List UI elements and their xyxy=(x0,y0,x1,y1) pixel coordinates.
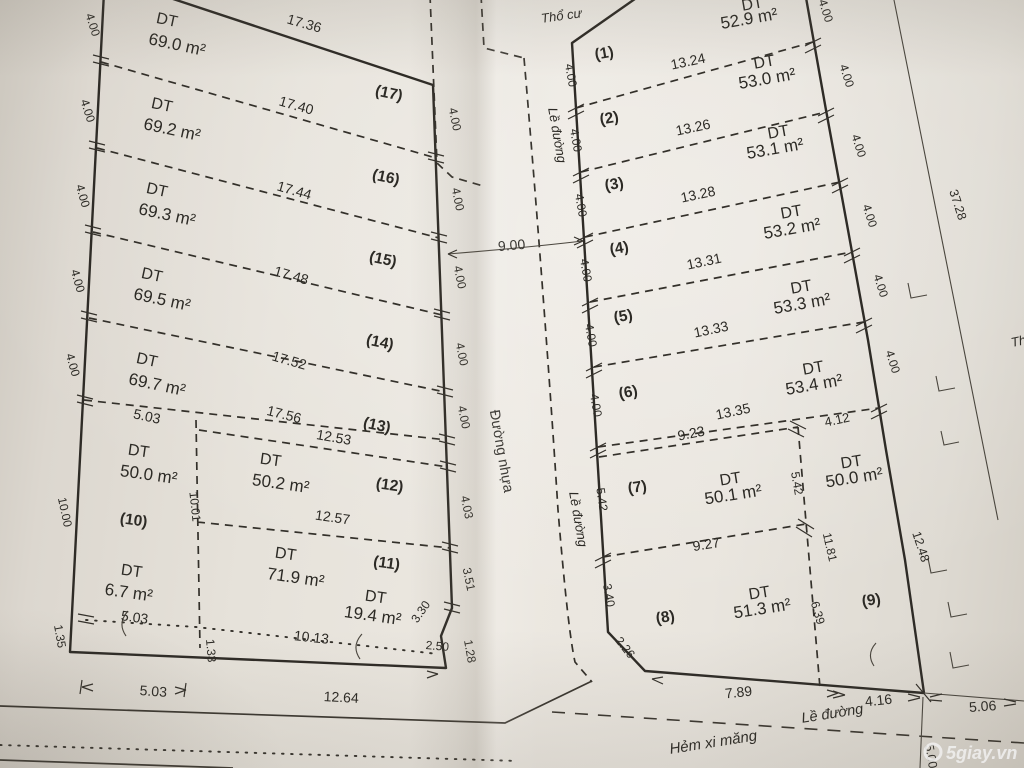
dim-3-51: 3.51 xyxy=(460,566,479,592)
lot-11-dt: DT xyxy=(274,545,298,565)
lot-17-area: 69.0 m² xyxy=(147,29,208,60)
dim-13-33: 13.33 xyxy=(692,318,730,341)
dim-13-28: 13.28 xyxy=(679,183,717,206)
lot-12-id: (12) xyxy=(375,475,405,496)
lot-3-area: 53.1 m² xyxy=(745,134,805,163)
dim-left-4-00-a: 4.00 xyxy=(83,11,104,38)
dim-rbright-4-00-b: 4.00 xyxy=(849,132,870,159)
dim-rbleft-4-00-c: 4.00 xyxy=(572,193,590,219)
dim-10-00: 10.00 xyxy=(55,496,75,529)
dim-bottom-5-03: 5.03 xyxy=(139,682,168,700)
lot-5-area: 53.3 m² xyxy=(772,289,832,318)
dim-10-13: 10.13 xyxy=(293,627,330,647)
dim-bottom-12-64: 12.64 xyxy=(323,688,359,706)
dim-12-57: 12.57 xyxy=(314,507,351,528)
lot-17-dt: DT xyxy=(155,10,180,31)
lot-8-area: 51.3 m² xyxy=(732,595,792,623)
lot-17-id: (17) xyxy=(374,82,405,104)
lot-15-id: (15) xyxy=(368,248,399,270)
dim-right-4-00-a: 4.00 xyxy=(446,106,465,132)
lot-11-area: 71.9 m² xyxy=(266,564,326,591)
dim-left-4-00-b: 4.00 xyxy=(78,97,99,124)
lot-10-dt: DT xyxy=(127,442,151,462)
watermark-text: 5giay.vn xyxy=(946,743,1017,763)
dim-9-23: 9.23 xyxy=(676,423,706,444)
bottom-road-dotted xyxy=(0,745,518,761)
dim-4-12: 4.12 xyxy=(823,410,851,430)
dim-13-24: 13.24 xyxy=(669,50,707,73)
boundary-37-28-line xyxy=(893,0,998,520)
lot-8-id: (8) xyxy=(655,608,676,628)
dim-rbright-4-00-a: 4.00 xyxy=(837,62,858,89)
dim-13-31: 13.31 xyxy=(685,250,723,273)
dim-2-50: 2.50 xyxy=(425,638,450,654)
lot-14-dt: DT xyxy=(140,265,165,286)
dim-37-28: 37.28 xyxy=(946,188,969,222)
dim-rbleft-4-00-b: 4.00 xyxy=(567,128,585,154)
lot-3-id: (3) xyxy=(603,175,625,195)
dim-17-52: 17.52 xyxy=(270,348,308,373)
lot-6-id: (6) xyxy=(617,383,639,403)
lot-13-dt: DT xyxy=(135,350,160,371)
dim-13-35: 13.35 xyxy=(714,400,752,423)
dim-12-53: 12.53 xyxy=(315,426,352,448)
dim-4-03: 4.03 xyxy=(458,494,477,520)
dim-5-42-inner: 5.42 xyxy=(788,471,806,497)
lot-13-id: (13) xyxy=(362,414,393,436)
dim-10-01: 10.01 xyxy=(186,491,203,523)
lot-16-dt: DT xyxy=(150,95,175,116)
dim-right-4-00-c: 4.00 xyxy=(451,264,470,290)
dim-left-4-00-c: 4.00 xyxy=(73,183,93,210)
label-le-duong-top: Lề đường xyxy=(545,106,570,164)
lot-7-id: (7) xyxy=(627,478,648,498)
lot-6-7-area: 6.7 m² xyxy=(104,580,155,606)
dim-5-42-side: 5.42 xyxy=(593,487,610,512)
lot-9-area: 50.0 m² xyxy=(824,464,884,492)
right-block-right-edge xyxy=(805,0,924,693)
dim-1-33: 1.33 xyxy=(203,638,219,663)
dim-17-36: 17.36 xyxy=(285,11,323,36)
lot-7-area: 50.1 m² xyxy=(703,481,763,509)
witness-marks xyxy=(908,283,969,668)
label-hem-xi-mang: Hẻm xi măng xyxy=(668,727,759,758)
dim-rbright-4-00-d: 4.00 xyxy=(871,272,892,299)
dim-rbleft-4-00-f: 4.00 xyxy=(587,393,605,419)
lot-1-id: (1) xyxy=(593,44,615,64)
lot-12-dt: DT xyxy=(259,451,283,471)
dim-rbright-4-00-top: 4.00 xyxy=(816,0,837,24)
dim-rbright-4-00-c: 4.00 xyxy=(860,202,881,229)
dim-left-4-00-e: 4.00 xyxy=(63,352,83,379)
lot-11-id: (11) xyxy=(372,553,401,574)
bottom-road-edge xyxy=(0,681,592,768)
label-tho-cu-right: Th xyxy=(1010,332,1024,350)
dim-11-81: 11.81 xyxy=(820,531,840,563)
dim-rbleft-4-00-a: 4.00 xyxy=(562,63,580,89)
dim-5-03-dotted: 5.03 xyxy=(120,607,149,627)
dim-17-44: 17.44 xyxy=(275,178,313,203)
dim-rbleft-4-00-d: 4.00 xyxy=(577,258,595,284)
lot-16-area: 69.2 m² xyxy=(142,114,203,145)
lot-6-area: 53.4 m² xyxy=(784,370,844,399)
dim-3-40: 3.40 xyxy=(600,583,618,609)
dim-right-4-00-e: 4.00 xyxy=(455,404,474,430)
dim-4-16: 4.16 xyxy=(864,691,893,710)
lot-2-area: 53.0 m² xyxy=(737,64,797,93)
lot-15-dt: DT xyxy=(145,180,170,201)
dim-1-35: 1.35 xyxy=(51,624,69,650)
label-duong-nhua: Đường nhựa xyxy=(486,409,516,495)
dim-9-27: 9.27 xyxy=(692,534,722,554)
lot-6-7-dt: DT xyxy=(120,562,144,582)
label-le-duong-bottom: Lề đường xyxy=(800,701,864,727)
lot-4-area: 53.2 m² xyxy=(762,214,822,243)
lot-10-id: (10) xyxy=(119,510,149,531)
cadastral-plan-photo: DT 69.0 m² (17) 17.36 DT 69.2 m² (16) 17… xyxy=(0,0,1024,768)
dim-13-26: 13.26 xyxy=(674,116,712,139)
label-le-duong-mid: Lề đường xyxy=(566,490,591,548)
lot-14-id: (14) xyxy=(365,331,396,353)
dim-2-26: 2.26 xyxy=(612,634,638,661)
dim-1-28: 1.28 xyxy=(461,639,479,665)
dim-6-39: 6.39 xyxy=(808,600,828,627)
dim-7-89: 7.89 xyxy=(724,683,753,702)
dim-left-4-00-d: 4.00 xyxy=(68,268,88,295)
lot-16-id: (16) xyxy=(371,166,402,188)
dim-rbright-4-00-e: 4.00 xyxy=(883,348,904,375)
lot-13-area: 69.7 m² xyxy=(127,369,188,400)
dim-12-48: 12.48 xyxy=(909,530,932,564)
lot-4-id: (4) xyxy=(608,239,630,259)
bottom-road-dashed xyxy=(552,712,1024,743)
dim-right-4-00-d: 4.00 xyxy=(453,341,472,367)
lot-19-4-area: 19.4 m² xyxy=(343,602,403,629)
dim-5-06: 5.06 xyxy=(969,697,998,715)
lot-5-id: (5) xyxy=(612,307,634,327)
label-tho-cu: Thổ cư xyxy=(540,5,583,26)
dim-5-00-line xyxy=(920,697,923,768)
lot-9-id: (9) xyxy=(861,591,882,611)
lot-2-id: (2) xyxy=(598,109,620,129)
site-plan-drawing: DT 69.0 m² (17) 17.36 DT 69.2 m² (16) 17… xyxy=(0,0,1024,768)
dim-3-30: 3.30 xyxy=(408,598,433,625)
lot-15-area: 69.3 m² xyxy=(137,199,198,230)
dim-right-4-00-b: 4.00 xyxy=(449,186,468,212)
arc-marks xyxy=(122,611,876,666)
lot-14-area: 69.5 m² xyxy=(132,284,193,315)
dim-road-9-00: 9.00 xyxy=(497,236,526,254)
lot-12-area: 50.2 m² xyxy=(251,470,311,497)
lot-10-area: 50.0 m² xyxy=(119,461,179,488)
dim-rbleft-4-00-e: 4.00 xyxy=(582,323,600,349)
road-boundary-dashed xyxy=(430,0,592,682)
lot-1-area: 52.9 m² xyxy=(719,4,779,33)
right-block-lot-boundaries xyxy=(576,42,879,688)
dim-17-48: 17.48 xyxy=(272,263,310,288)
